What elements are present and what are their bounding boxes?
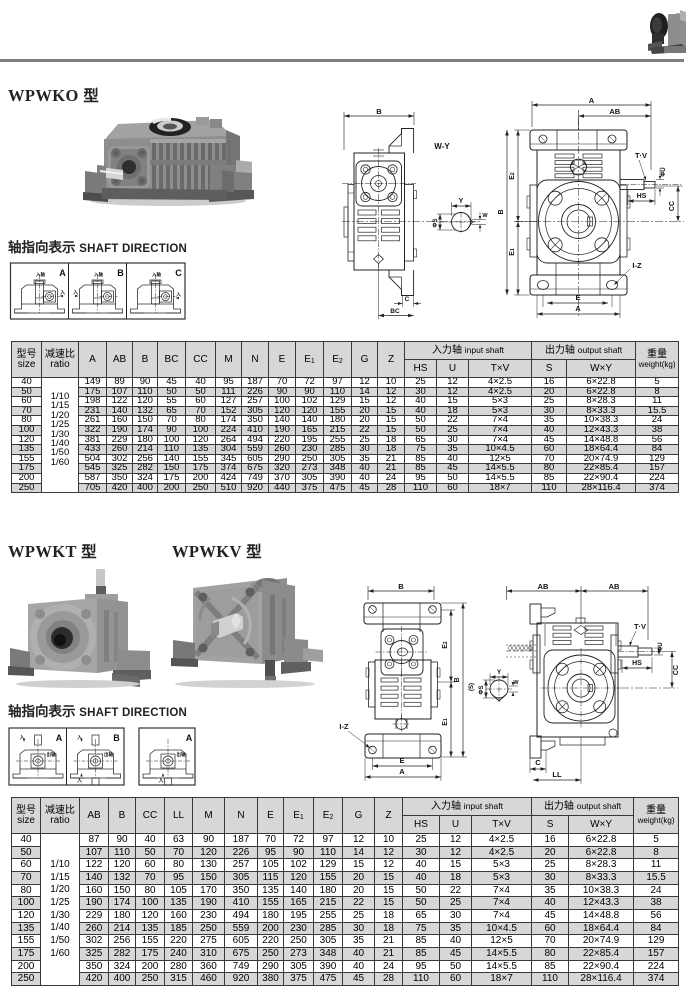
svg-text:Y: Y bbox=[459, 198, 464, 205]
svg-text:CC: CC bbox=[673, 665, 680, 675]
svg-text:BC: BC bbox=[390, 308, 400, 315]
svg-text:ΦS: ΦS bbox=[479, 686, 485, 695]
svg-text:入轴: 入轴 bbox=[93, 271, 103, 278]
svg-text:HS: HS bbox=[637, 193, 647, 200]
svg-text:出轴: 出轴 bbox=[177, 751, 186, 758]
svg-text:E1: E1 bbox=[509, 248, 516, 256]
svg-text:I-Z: I-Z bbox=[632, 261, 642, 270]
svg-text:A: A bbox=[186, 733, 193, 743]
svg-text:LL: LL bbox=[552, 770, 562, 779]
svg-text:ΦU: ΦU bbox=[658, 642, 664, 651]
svg-text:T·V: T·V bbox=[635, 151, 647, 160]
svg-text:A: A bbox=[399, 767, 405, 776]
svg-text:W: W bbox=[513, 680, 519, 686]
svg-text:B: B bbox=[376, 107, 382, 116]
svg-text:B: B bbox=[113, 733, 120, 743]
svg-text:C: C bbox=[535, 758, 541, 767]
svg-text:出轴: 出轴 bbox=[104, 751, 113, 758]
svg-text:入: 入 bbox=[77, 778, 82, 784]
svg-text:A: A bbox=[59, 268, 66, 278]
svg-text:(S): (S) bbox=[469, 683, 475, 691]
svg-text:HS: HS bbox=[632, 660, 642, 667]
svg-text:C: C bbox=[405, 296, 410, 303]
svg-text:B: B bbox=[117, 268, 124, 278]
svg-text:入: 入 bbox=[158, 778, 163, 784]
svg-text:W-Y: W-Y bbox=[434, 142, 450, 151]
svg-text:B: B bbox=[498, 209, 505, 214]
svg-text:B: B bbox=[398, 582, 404, 591]
svg-text:I-Z: I-Z bbox=[339, 722, 349, 731]
svg-text:ΦS: ΦS bbox=[433, 219, 439, 228]
svg-text:Y: Y bbox=[497, 669, 502, 676]
svg-text:A: A bbox=[56, 733, 63, 743]
svg-text:AB: AB bbox=[538, 582, 549, 591]
svg-text:E2: E2 bbox=[509, 172, 516, 180]
svg-text:E: E bbox=[399, 756, 404, 765]
svg-text:C: C bbox=[175, 268, 182, 278]
svg-text:W: W bbox=[482, 213, 488, 219]
svg-text:T·V: T·V bbox=[634, 622, 646, 631]
svg-text:E1: E1 bbox=[442, 718, 449, 726]
svg-text:ΦU: ΦU bbox=[661, 167, 667, 176]
svg-text:A: A bbox=[589, 96, 595, 105]
svg-text:AB: AB bbox=[609, 582, 620, 591]
svg-text:出轴: 出轴 bbox=[47, 751, 56, 758]
svg-text:A: A bbox=[575, 304, 581, 313]
svg-text:E: E bbox=[575, 293, 580, 302]
svg-text:B: B bbox=[454, 677, 461, 682]
svg-text:E2: E2 bbox=[442, 641, 449, 649]
svg-text:CC: CC bbox=[669, 201, 676, 211]
svg-text:AB: AB bbox=[609, 107, 620, 116]
svg-text:入轴: 入轴 bbox=[35, 271, 45, 278]
svg-text:入轴: 入轴 bbox=[151, 271, 161, 278]
